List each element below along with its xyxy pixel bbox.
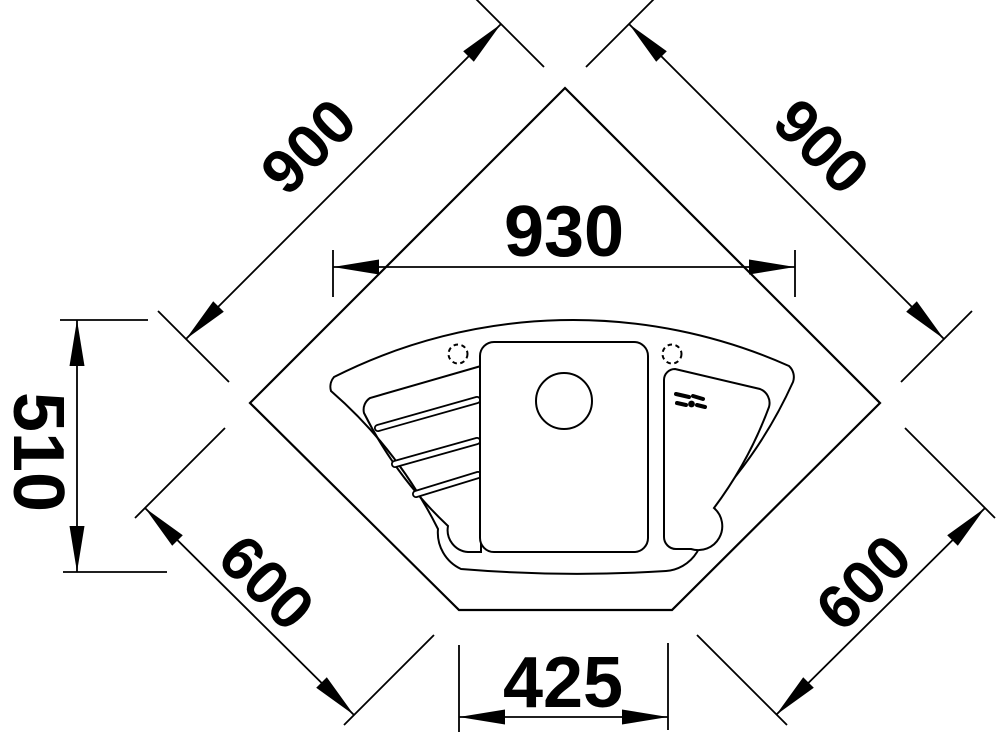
- dimension-label-900-right: 900: [760, 86, 882, 208]
- dimension-label-510: 510: [0, 392, 78, 512]
- dimension-425: 425: [459, 643, 668, 732]
- dimension-label-600-left: 600: [205, 522, 327, 644]
- dimension-label-900-left: 900: [248, 86, 370, 208]
- dimension-label-930: 930: [504, 192, 624, 272]
- technical-drawing-page: 930 425 510 900 900 600 600: [0, 0, 1000, 741]
- dimension-510: 510: [0, 320, 167, 572]
- dimension-label-600-right: 600: [803, 522, 925, 644]
- dimension-label-425: 425: [503, 643, 623, 723]
- technical-drawing-canvas: 930 425 510 900 900 600 600: [0, 0, 1000, 741]
